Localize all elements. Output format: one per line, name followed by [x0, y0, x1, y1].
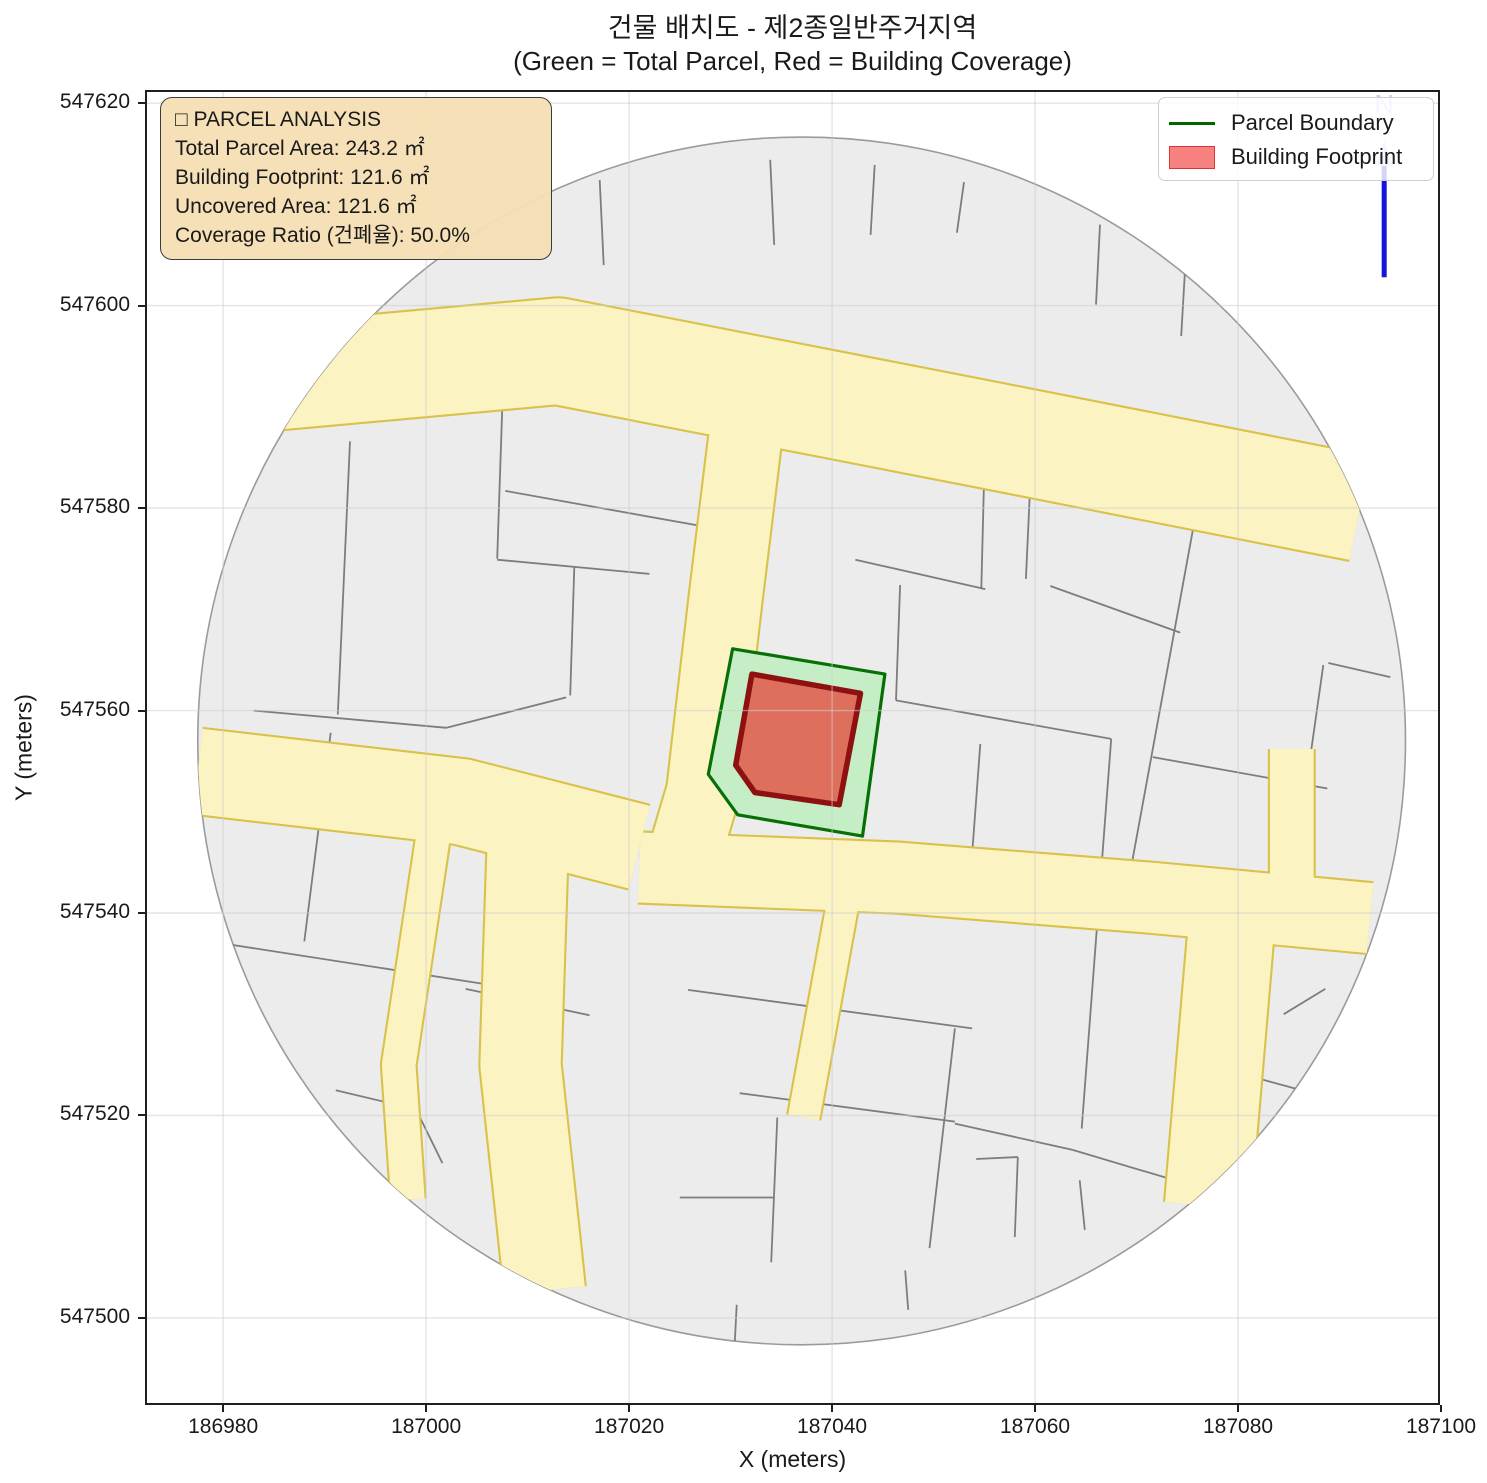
parcel-analysis-infobox: □ PARCEL ANALYSIS Total Parcel Area: 243…: [160, 97, 552, 260]
x-tick-mark: [1440, 1405, 1442, 1412]
x-tick-label: 187020: [569, 1415, 689, 1439]
x-tick-label: 187080: [1178, 1415, 1298, 1439]
y-tick-mark: [138, 102, 145, 104]
infobox-coverage-ratio: Coverage Ratio (건폐율): 50.0%: [175, 221, 537, 250]
y-tick-mark: [138, 1317, 145, 1319]
road: [521, 847, 545, 1290]
x-tick-mark: [425, 1405, 427, 1412]
chart-title: 건물 배치도 - 제2종일반주거지역 (Green = Total Parcel…: [145, 12, 1440, 77]
y-tick-mark: [138, 912, 145, 914]
x-tick-label: 187040: [772, 1415, 892, 1439]
chart-title-line2: (Green = Total Parcel, Red = Building Co…: [145, 45, 1440, 77]
x-tick-mark: [831, 1405, 833, 1412]
x-axis-label: X (meters): [145, 1446, 1440, 1473]
infobox-total-parcel-area: Total Parcel Area: 243.2 ㎡: [175, 134, 537, 163]
y-tick-mark: [138, 1114, 145, 1116]
y-axis-label: Y (meters): [11, 648, 38, 848]
figure: 건물 배치도 - 제2종일반주거지역 (Green = Total Parcel…: [0, 0, 1487, 1483]
building-footprint-polygon: [736, 674, 861, 805]
legend-item-parcel-boundary: Parcel Boundary: [1169, 106, 1423, 140]
map-canvas: N: [145, 90, 1440, 1405]
y-tick-label: 547560: [22, 698, 130, 722]
y-tick-label: 547620: [22, 90, 130, 114]
road: [1208, 908, 1233, 1206]
y-tick-label: 547520: [22, 1102, 130, 1126]
infobox-uncovered-area: Uncovered Area: 121.6 ㎡: [175, 192, 537, 221]
x-tick-label: 187060: [975, 1415, 1095, 1439]
x-tick-label: 187000: [366, 1415, 486, 1439]
x-tick-label: 186980: [163, 1415, 283, 1439]
plot-area: N □ PARCEL ANALYSIS Total Parcel Area: 2…: [145, 90, 1440, 1405]
x-tick-mark: [222, 1405, 224, 1412]
parcel-boundary-line-swatch: [1169, 122, 1215, 125]
chart-title-line1: 건물 배치도 - 제2종일반주거지역: [145, 12, 1440, 45]
x-tick-mark: [1237, 1405, 1239, 1412]
y-tick-mark: [138, 305, 145, 307]
building-footprint-patch-swatch: [1169, 146, 1215, 169]
y-tick-label: 547500: [22, 1305, 130, 1329]
y-tick-label: 547540: [22, 900, 130, 924]
legend-label-building-footprint: Building Footprint: [1231, 144, 1402, 170]
legend-label-parcel-boundary: Parcel Boundary: [1231, 110, 1394, 136]
y-tick-label: 547580: [22, 495, 130, 519]
legend-item-building-footprint: Building Footprint: [1169, 140, 1423, 174]
y-tick-label: 547600: [22, 293, 130, 317]
infobox-title: □ PARCEL ANALYSIS: [175, 105, 537, 134]
legend: Parcel Boundary Building Footprint: [1158, 97, 1434, 181]
x-tick-mark: [1034, 1405, 1036, 1412]
infobox-building-footprint: Building Footprint: 121.6 ㎡: [175, 163, 537, 192]
x-tick-label: 187100: [1381, 1415, 1487, 1439]
y-tick-mark: [138, 507, 145, 509]
x-tick-mark: [628, 1405, 630, 1412]
y-tick-mark: [138, 710, 145, 712]
